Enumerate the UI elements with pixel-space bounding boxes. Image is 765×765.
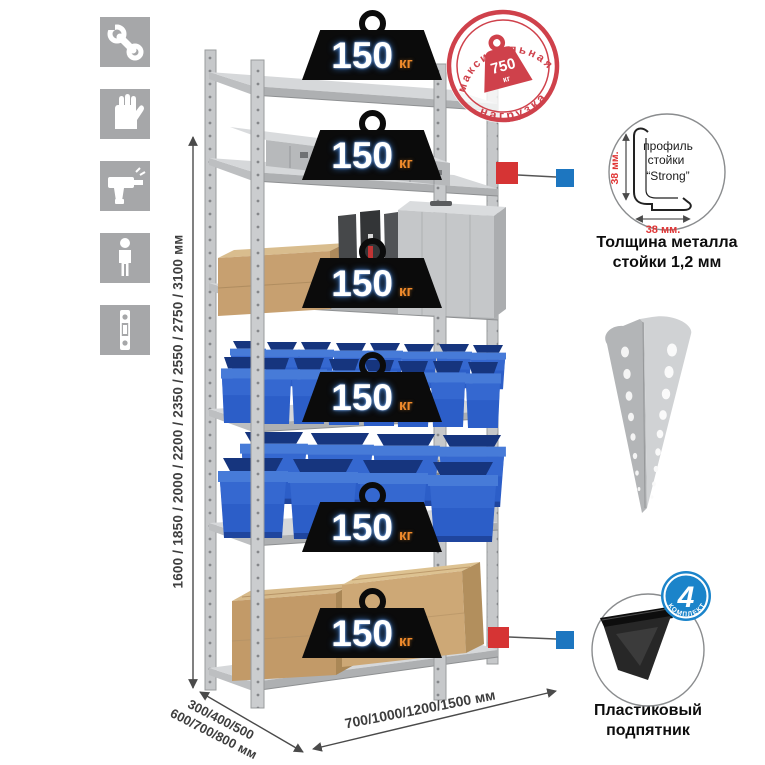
icon-tile-upright: [100, 305, 150, 355]
upright-profile-image: [605, 316, 691, 513]
quantity-badge-value: 4: [677, 581, 695, 614]
icon-tile-person: [100, 233, 150, 283]
icon-tile-drill: [100, 161, 150, 211]
shelf-load-badge-2: 150кг: [302, 110, 442, 180]
profile-label-2: стойки: [648, 153, 685, 167]
shelf-load-badge-5: 150кг: [302, 482, 442, 552]
blue-marker-bottom: [556, 631, 574, 649]
load-value: 150: [331, 379, 393, 416]
person-icon: [100, 233, 150, 283]
icon-tile-gloves: [100, 89, 150, 139]
shelf-load-badge-3: 150кг: [302, 238, 442, 308]
callout-connector-bottom: [488, 627, 574, 649]
rack-post-front-left: [251, 60, 264, 708]
load-unit: кг: [399, 397, 413, 414]
wrench-icon: [100, 17, 150, 67]
profile-label-3: “Strong”: [646, 169, 689, 183]
load-unit: кг: [399, 633, 413, 650]
rack-post-back-left: [205, 50, 216, 690]
load-value: 150: [331, 265, 393, 302]
load-value: 150: [331, 37, 393, 74]
callout-connector-top: [496, 162, 574, 187]
foot-caption: Пластиковый подпятник: [548, 701, 748, 742]
foot-caption-line1: Пластиковый: [548, 701, 748, 721]
profile-caption-line2: стойки 1,2 мм: [567, 253, 765, 273]
load-value: 150: [331, 509, 393, 546]
load-unit: кг: [399, 155, 413, 172]
load-unit: кг: [399, 283, 413, 300]
max-load-stamp: максимальная нагрузка 750 кг: [433, 0, 573, 136]
red-marker-top: [496, 162, 518, 184]
gloves-icon: [100, 89, 150, 139]
foot-caption-line2: подпятник: [548, 721, 748, 741]
drill-icon: [100, 161, 150, 211]
blue-marker-top: [556, 169, 574, 187]
load-unit: кг: [399, 55, 413, 72]
profile-label-1: профиль: [643, 139, 693, 153]
profile-caption-line1: Толщина металла: [567, 233, 765, 253]
profile-dim-vertical: 38 мм.: [609, 151, 621, 184]
shelf-load-badge-6: 150кг: [302, 588, 442, 658]
profile-detail-circle: 38 мм. 38 мм. профиль стойки “Strong”: [609, 114, 725, 236]
icon-tile-wrench: [100, 17, 150, 67]
load-value: 150: [331, 615, 393, 652]
load-value: 150: [331, 137, 393, 174]
red-marker-bottom: [488, 627, 509, 648]
upright-profile-icon: [100, 305, 150, 355]
load-unit: кг: [399, 527, 413, 544]
height-dimension-label: 1600 / 1850 / 2000 / 2200 / 2350 / 2550 …: [171, 112, 186, 712]
profile-caption: Толщина металла стойки 1,2 мм: [567, 233, 765, 274]
infographic-shelving-rack: максимальная нагрузка 750 кг 38 мм. 38 м…: [0, 0, 765, 765]
shelf-load-badge-1: 150кг: [302, 10, 442, 80]
shelf-load-badge-4: 150кг: [302, 352, 442, 422]
